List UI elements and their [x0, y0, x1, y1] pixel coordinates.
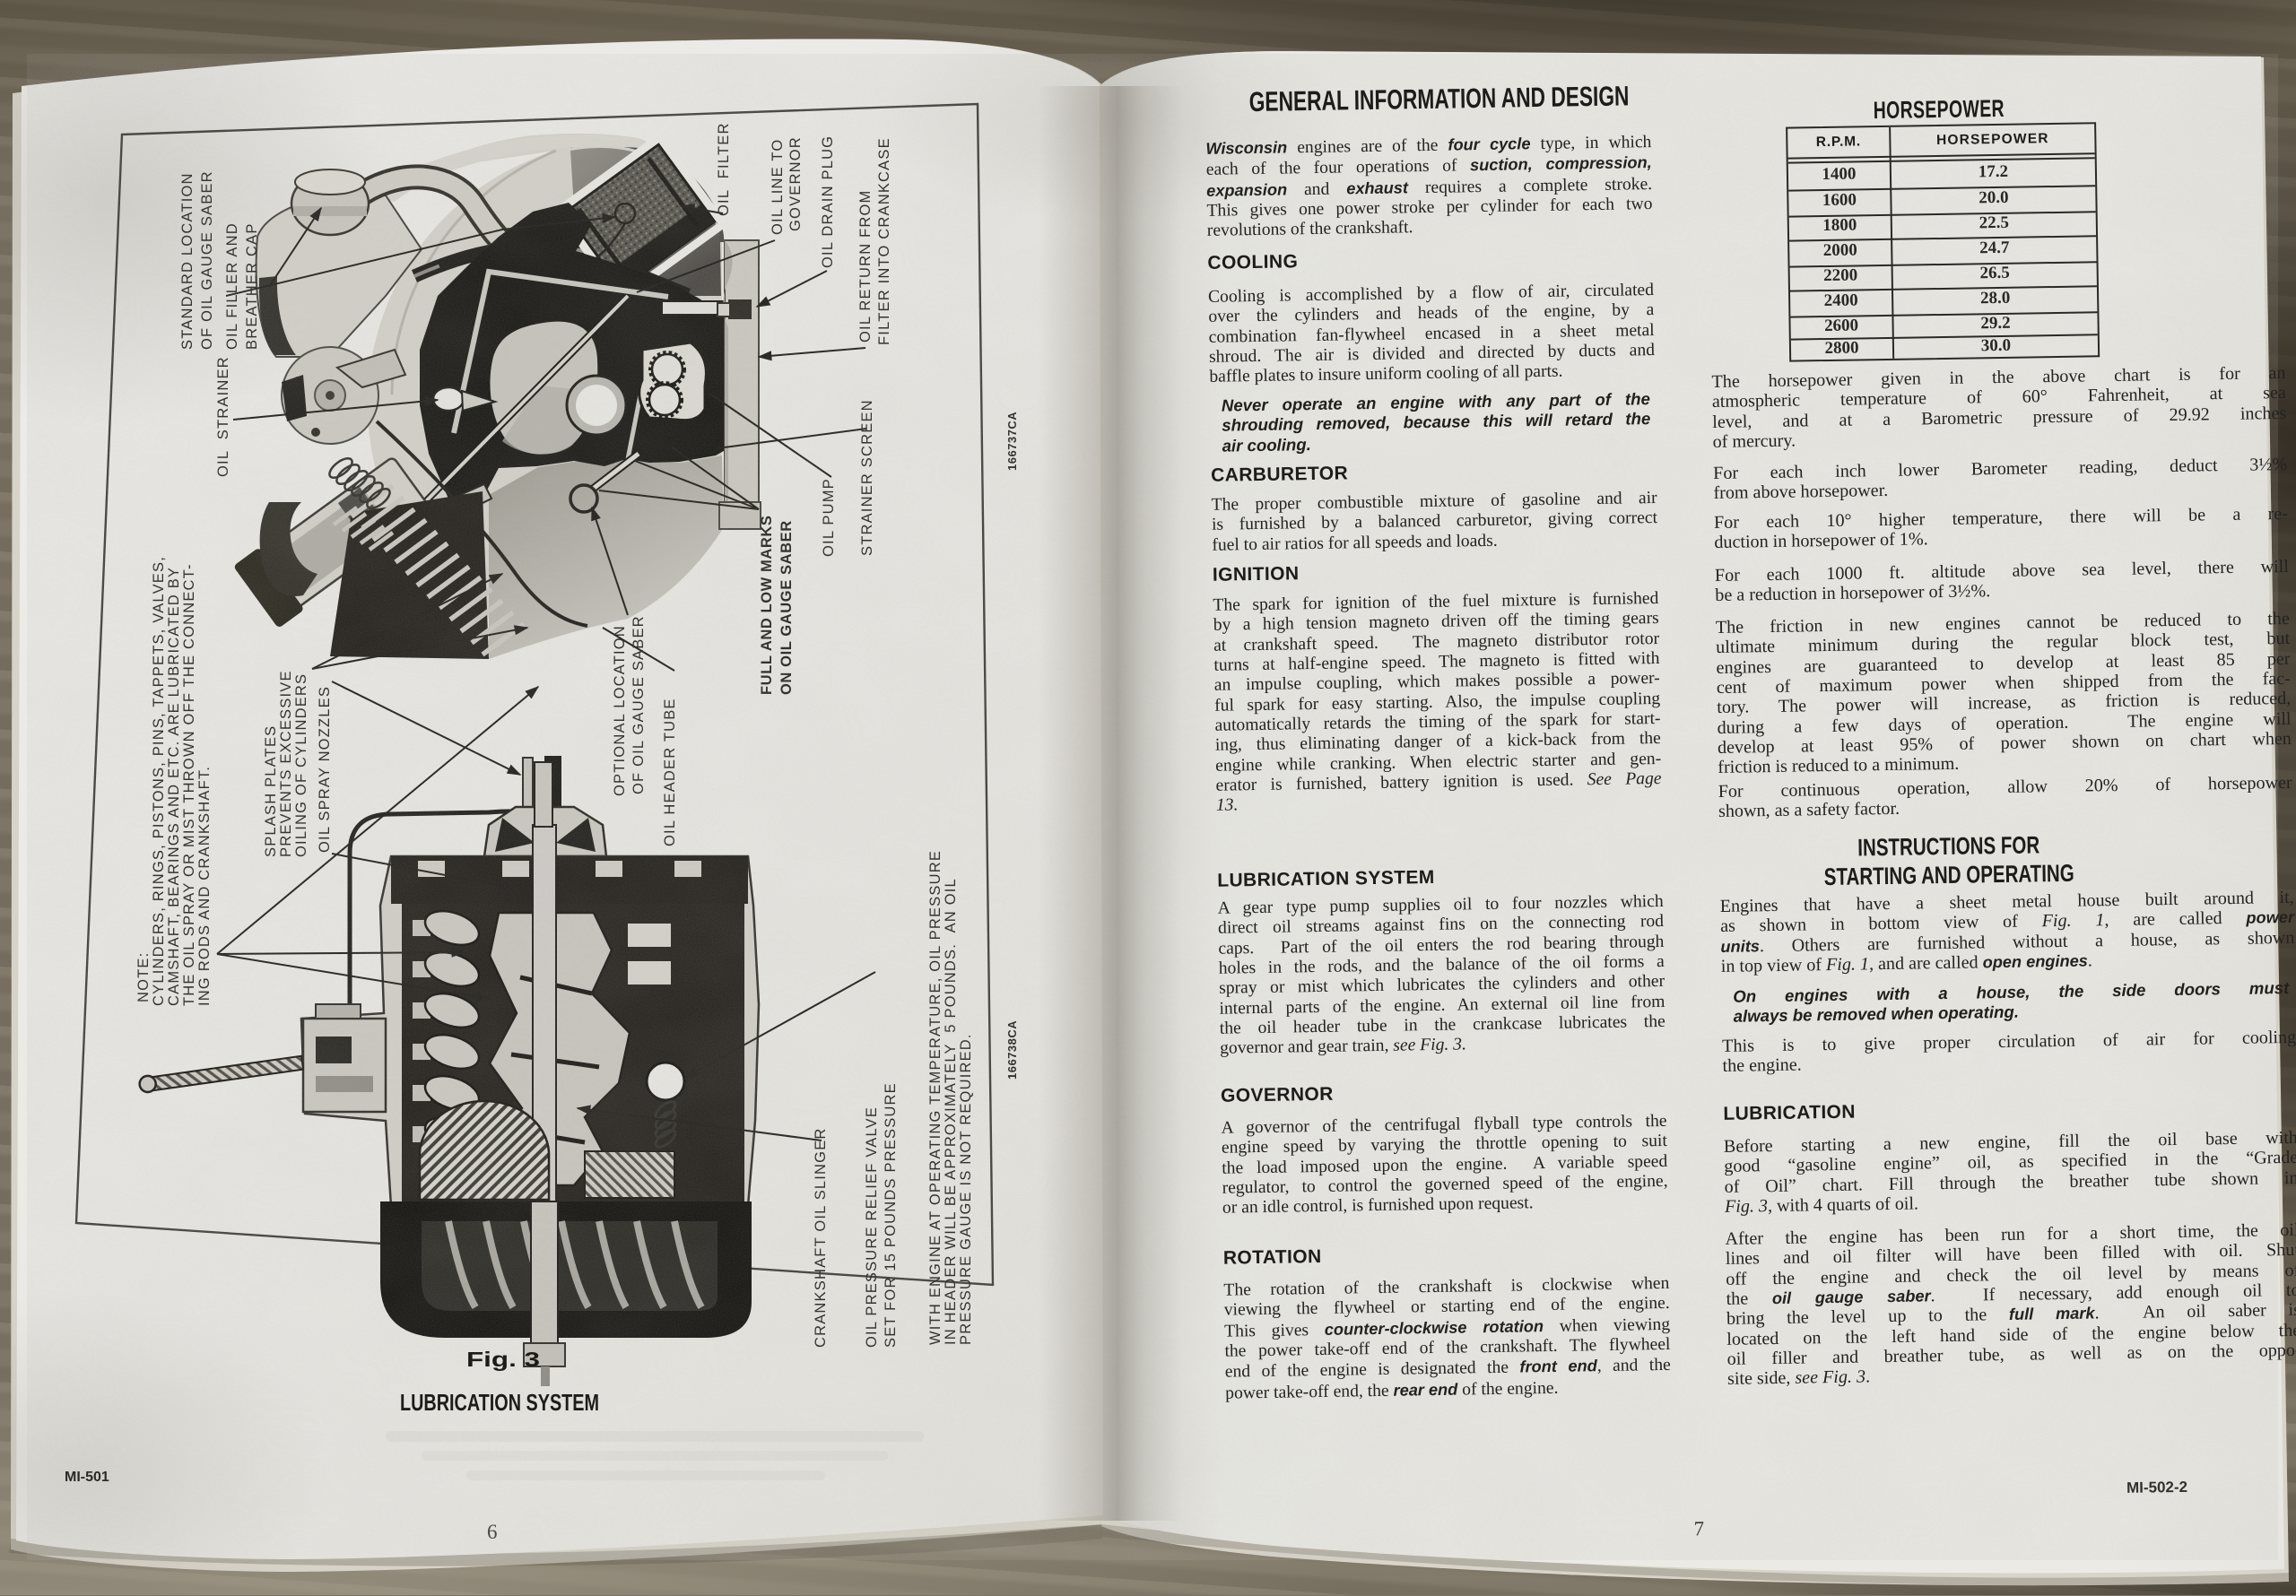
svg-text:6: 6 [487, 1521, 498, 1543]
svg-text:LUBRICATION SYSTEM: LUBRICATION SYSTEM [400, 1389, 599, 1416]
svg-text:MI-501: MI-501 [65, 1470, 109, 1485]
svg-text:Fig. 3: Fig. 3 [466, 1348, 540, 1371]
